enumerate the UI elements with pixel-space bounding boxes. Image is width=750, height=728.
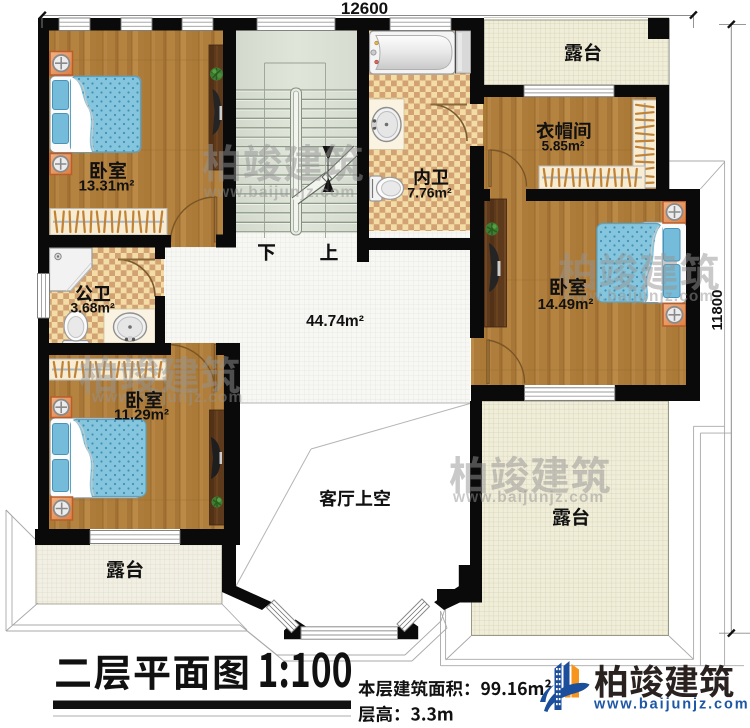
svg-text:12600: 12600	[341, 0, 388, 18]
svg-text:www.baijunjz.com: www.baijunjz.com	[593, 697, 750, 713]
svg-text:11800: 11800	[709, 290, 726, 331]
svg-text:7.76m²: 7.76m²	[407, 185, 452, 201]
svg-text:www.baijunjz.com: www.baijunjz.com	[91, 389, 243, 406]
svg-text:11.29m²: 11.29m²	[114, 407, 169, 424]
svg-text:www.baijunjz.com: www.baijunjz.com	[203, 184, 355, 201]
svg-text:5.85m²: 5.85m²	[542, 139, 585, 154]
svg-text:44.74m²: 44.74m²	[306, 313, 364, 330]
svg-text:13.31m²: 13.31m²	[79, 178, 135, 195]
svg-text:www.baijunjz.com: www.baijunjz.com	[452, 489, 604, 506]
svg-text:3.68m²: 3.68m²	[70, 300, 115, 316]
svg-text:14.49m²: 14.49m²	[538, 296, 594, 313]
